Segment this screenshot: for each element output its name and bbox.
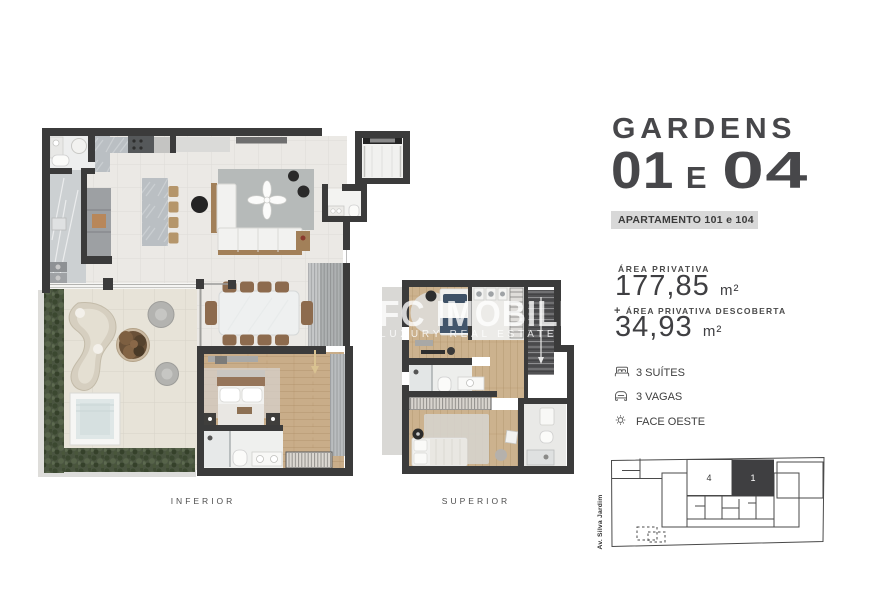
svg-text:1: 1	[750, 473, 755, 483]
svg-text:4: 4	[706, 473, 711, 483]
svg-text:Av. Silva Jardim: Av. Silva Jardim	[597, 495, 604, 550]
